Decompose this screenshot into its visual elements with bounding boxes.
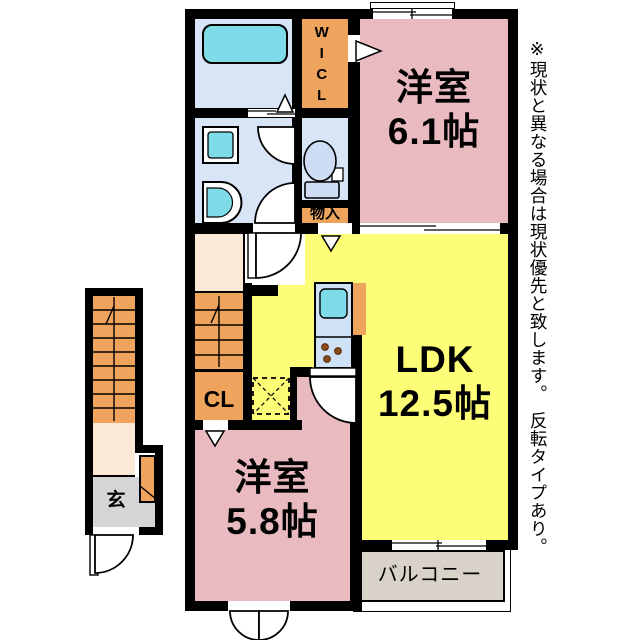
room-toilet [302, 118, 348, 200]
storage-label: 物入 [300, 205, 350, 222]
annex-wall-east-upper [135, 288, 143, 453]
ldk-name: LDK [362, 338, 508, 382]
balcony-window [392, 540, 486, 550]
room-hall [195, 233, 243, 292]
room-bedroom2-nook [297, 377, 350, 430]
room-bathroom [195, 19, 292, 108]
wall-stub [243, 285, 278, 296]
room-washroom [195, 118, 292, 223]
entrance-door-arc [95, 535, 133, 573]
wall-kitchen-south [290, 367, 312, 377]
wall-east [508, 9, 518, 550]
bedroom1-label: 洋室 6.1帖 [360, 66, 508, 154]
bedroom2-label: 洋室 5.8帖 [195, 456, 350, 544]
south-door-left-arc [230, 611, 259, 640]
annex-wall-east-lower [155, 445, 163, 535]
ldk-size: 12.5帖 [362, 382, 508, 426]
wic-label: WICL [313, 23, 330, 108]
stairs-lower [93, 296, 135, 423]
washroom-door-opening [253, 223, 295, 234]
wall-stair-top [195, 291, 243, 293]
entrance-door-opening [93, 527, 139, 535]
shoe-cabinet [139, 455, 156, 503]
bedroom2-size: 5.8帖 [195, 500, 350, 544]
closet-label: CL [195, 386, 243, 412]
wall-hall-east [243, 283, 252, 422]
south-door-opening [228, 601, 290, 611]
wic-door-opening [348, 35, 360, 62]
floor-plan: 洋室 6.1帖 LDK 12.5帖 洋室 5.8帖 バルコニー WICL 物入 … [0, 0, 640, 640]
south-door-right-arc [259, 611, 288, 640]
bedroom1-size: 6.1帖 [360, 110, 508, 154]
bedroom1-name: 洋室 [360, 66, 508, 110]
wall-closet-top [195, 369, 243, 372]
north-window-sill [370, 2, 455, 9]
wall-doorframe [243, 233, 245, 285]
entrance-door-leaf [90, 535, 98, 575]
wall-west [185, 9, 195, 611]
bath-sliding-door [248, 109, 295, 117]
annex-wall-west [85, 288, 93, 535]
stair-landing [93, 423, 135, 477]
closet-door-opening [203, 420, 228, 430]
storage-door-opening [318, 223, 352, 234]
disclaimer-note: ※現状と異なる場合は現状優先と致します。 反転タイプあり。 [528, 40, 548, 600]
stairs-upper [195, 292, 243, 370]
entrance-label: 玄 [93, 490, 139, 512]
annex-landing-line [93, 475, 135, 477]
kitchen-side-panel [352, 283, 366, 335]
bedroom2-name: 洋室 [195, 456, 350, 500]
wall-wic-divider [292, 108, 360, 118]
north-window [373, 9, 452, 19]
bedroom1-ldk-slider [360, 223, 500, 234]
ldk-label: LDK 12.5帖 [362, 338, 508, 426]
hall-doorway-floor [245, 233, 305, 285]
balcony-label: バルコニー [355, 564, 505, 587]
